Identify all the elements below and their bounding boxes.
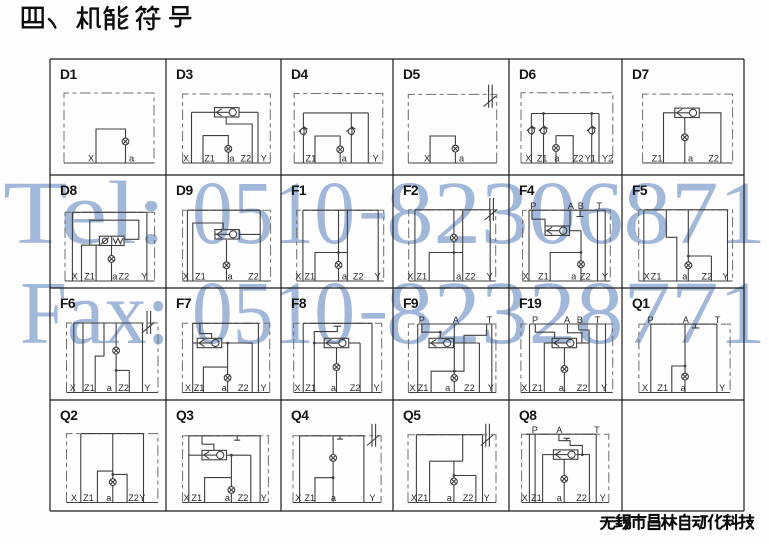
svg-text:Y: Y — [141, 272, 147, 282]
svg-text:X: X — [183, 272, 189, 282]
svg-text:Z1: Z1 — [418, 493, 429, 503]
svg-text:X: X — [295, 493, 301, 503]
svg-text:T: T — [596, 201, 602, 211]
svg-text:a: a — [456, 272, 462, 282]
svg-text:Z2: Z2 — [238, 493, 249, 503]
svg-text:Z2: Z2 — [702, 272, 713, 282]
svg-text:A: A — [568, 201, 575, 211]
svg-text:Z2: Z2 — [350, 383, 361, 393]
svg-text:F5: F5 — [632, 183, 648, 198]
svg-text:F4: F4 — [519, 183, 535, 198]
svg-text:Y: Y — [601, 383, 607, 393]
svg-text:Y: Y — [488, 383, 494, 393]
svg-text:T: T — [594, 425, 600, 435]
svg-text:P: P — [532, 425, 538, 435]
svg-text:0510: 0510 — [192, 164, 355, 263]
svg-text:Z2: Z2 — [708, 154, 719, 164]
svg-text:Y: Y — [487, 272, 493, 282]
svg-text:X: X — [295, 383, 301, 393]
svg-text:a: a — [331, 383, 337, 393]
svg-text:Z1: Z1 — [416, 272, 427, 282]
svg-text:X: X — [185, 383, 191, 393]
svg-text:Tel:: Tel: — [3, 164, 166, 263]
svg-text:X: X — [410, 383, 416, 393]
svg-text:Z1: Z1 — [651, 272, 662, 282]
svg-text:Z2: Z2 — [238, 383, 249, 393]
svg-text:Q4: Q4 — [291, 408, 309, 423]
svg-text:Z2: Z2 — [577, 383, 588, 393]
svg-text:D1: D1 — [60, 67, 77, 82]
svg-text:Z1: Z1 — [306, 154, 317, 164]
svg-text:Z2: Z2 — [248, 272, 259, 282]
svg-text:a: a — [459, 154, 465, 164]
svg-text:D5: D5 — [403, 67, 420, 82]
svg-text:F9: F9 — [403, 296, 419, 311]
svg-text:F8: F8 — [291, 296, 307, 311]
svg-text:a: a — [228, 272, 234, 282]
svg-text:X: X — [525, 154, 531, 164]
svg-text:D3: D3 — [176, 67, 193, 82]
svg-text:a: a — [681, 383, 687, 393]
svg-text:Z1: Z1 — [418, 383, 429, 393]
svg-text:Z2: Z2 — [241, 154, 252, 164]
svg-text:P: P — [648, 315, 654, 325]
svg-text:X: X — [72, 272, 78, 282]
svg-text:a: a — [229, 154, 235, 164]
svg-text:B: B — [577, 315, 583, 325]
svg-text:Q1: Q1 — [632, 296, 650, 311]
svg-text:F1: F1 — [291, 183, 307, 198]
svg-text:A: A — [556, 425, 563, 435]
svg-text:Z1: Z1 — [304, 493, 315, 503]
svg-text:Y: Y — [261, 154, 267, 164]
svg-text:Z2: Z2 — [465, 272, 476, 282]
svg-text:Z1: Z1 — [532, 383, 543, 393]
svg-text:T: T — [715, 315, 721, 325]
svg-text:Y: Y — [261, 383, 267, 393]
svg-text:Q2: Q2 — [60, 408, 78, 423]
svg-text:T: T — [487, 315, 493, 325]
svg-text:Y: Y — [373, 154, 379, 164]
svg-text:Y2: Y2 — [602, 154, 613, 164]
svg-text:X: X — [644, 272, 650, 282]
svg-text:X: X — [70, 383, 76, 393]
svg-text:Y: Y — [722, 272, 728, 282]
svg-text:D7: D7 — [632, 67, 649, 82]
svg-text:Z2: Z2 — [573, 154, 584, 164]
svg-text:D9: D9 — [176, 183, 193, 198]
svg-text:Z2: Z2 — [119, 272, 130, 282]
svg-text:Z1: Z1 — [304, 272, 315, 282]
svg-text:Z1: Z1 — [537, 154, 548, 164]
svg-text:X: X — [88, 154, 94, 164]
svg-text:Z2: Z2 — [463, 493, 474, 503]
svg-text:Z1: Z1 — [191, 493, 202, 503]
svg-text:X: X — [71, 493, 77, 503]
svg-text:Z1: Z1 — [657, 383, 668, 393]
svg-text:X: X — [642, 383, 648, 393]
svg-text:Z2: Z2 — [464, 383, 475, 393]
svg-text:A: A — [683, 315, 690, 325]
svg-text:P: P — [530, 201, 536, 211]
svg-text:X: X — [522, 493, 528, 503]
svg-text:A: A — [453, 315, 460, 325]
svg-text:a: a — [112, 272, 118, 282]
svg-text:F6: F6 — [60, 296, 76, 311]
svg-text:X: X — [424, 154, 430, 164]
svg-text:X: X — [184, 493, 190, 503]
svg-text:Z1: Z1 — [531, 493, 542, 503]
svg-text:a: a — [445, 383, 451, 393]
svg-text:Z2: Z2 — [353, 272, 364, 282]
svg-text:a: a — [342, 154, 348, 164]
svg-text:Y1: Y1 — [585, 154, 596, 164]
svg-text:Z2: Z2 — [580, 272, 591, 282]
svg-text:D8: D8 — [60, 183, 77, 198]
svg-text:Y: Y — [144, 383, 150, 393]
svg-text:Z2: Z2 — [128, 493, 139, 503]
svg-text:A: A — [564, 315, 571, 325]
svg-text:X: X — [295, 272, 301, 282]
svg-text:X: X — [523, 272, 529, 282]
svg-text:Y: Y — [602, 272, 608, 282]
svg-text:Z1: Z1 — [204, 154, 215, 164]
svg-text:Y: Y — [261, 493, 267, 503]
svg-text:Y: Y — [369, 493, 375, 503]
svg-text:Z1: Z1 — [84, 383, 95, 393]
svg-text:D6: D6 — [519, 67, 536, 82]
svg-text:Z1: Z1 — [83, 493, 94, 503]
svg-text:a: a — [342, 272, 348, 282]
svg-text:82306871: 82306871 — [386, 164, 766, 263]
svg-text:X: X — [411, 493, 417, 503]
svg-text:Z2: Z2 — [576, 493, 587, 503]
svg-text:Z1: Z1 — [195, 272, 206, 282]
svg-text:a: a — [129, 154, 135, 164]
svg-text:a: a — [222, 383, 228, 393]
svg-text:a: a — [225, 493, 231, 503]
svg-text:a: a — [557, 493, 563, 503]
svg-text:a: a — [106, 493, 112, 503]
svg-text:X: X — [521, 383, 527, 393]
svg-text:a: a — [447, 493, 453, 503]
svg-text:a: a — [682, 272, 688, 282]
svg-text:F19: F19 — [519, 296, 542, 311]
svg-text:Y: Y — [484, 493, 490, 503]
svg-text:a: a — [331, 493, 337, 503]
svg-text:Z1: Z1 — [84, 272, 95, 282]
svg-text:Z1: Z1 — [194, 383, 205, 393]
svg-text:Z1: Z1 — [538, 272, 549, 282]
svg-text:a: a — [688, 154, 694, 164]
svg-text:a: a — [107, 383, 113, 393]
svg-text:a: a — [554, 154, 560, 164]
svg-text:a: a — [559, 383, 565, 393]
svg-text:Y: Y — [600, 493, 606, 503]
svg-text:Q5: Q5 — [403, 408, 421, 423]
svg-text:Y: Y — [719, 383, 725, 393]
svg-text:Z1: Z1 — [652, 154, 663, 164]
svg-text:F2: F2 — [403, 183, 419, 198]
svg-text:X: X — [407, 272, 413, 282]
svg-text:P: P — [419, 315, 425, 325]
svg-text:Q8: Q8 — [519, 408, 537, 423]
svg-text:T: T — [595, 315, 601, 325]
svg-text:Y: Y — [139, 493, 145, 503]
svg-text:P: P — [532, 315, 538, 325]
svg-text:X: X — [183, 154, 189, 164]
svg-text:Y: Y — [375, 272, 381, 282]
svg-text:D4: D4 — [291, 67, 308, 82]
svg-text:Q3: Q3 — [176, 408, 194, 423]
svg-text:Y: Y — [374, 383, 380, 393]
svg-text:F7: F7 — [176, 296, 192, 311]
svg-text:B: B — [578, 201, 584, 211]
svg-text:Z1: Z1 — [305, 383, 316, 393]
svg-text:a: a — [571, 272, 577, 282]
svg-text:Z2: Z2 — [118, 383, 129, 393]
